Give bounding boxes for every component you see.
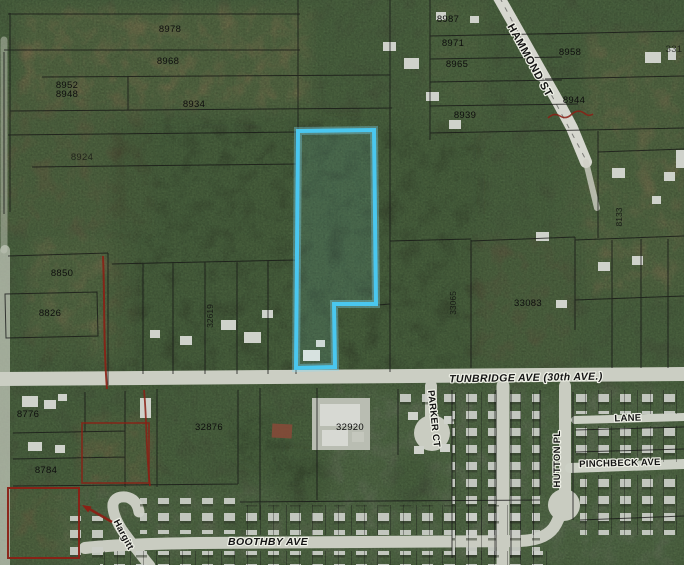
parcel-label-32619: 32619 [205,304,215,328]
parcel-label-8784: 8784 [35,465,57,476]
parcel-label-8987: 8987 [437,14,459,25]
street-label-boothby-ave: BOOTHBY AVE [228,536,309,548]
parcel-label-8948: 8948 [56,89,78,100]
parcel-label-331: 331 [666,44,683,55]
parcel-label-8965: 8965 [446,59,468,70]
parcel-label-8776: 8776 [17,409,39,420]
parcel-label-8944: 8944 [563,95,585,106]
parcel-label-33083: 33083 [514,298,542,309]
aerial-map-canvas[interactable]: 8978 8968 8952 8948 8934 8924 8850 8826 … [0,0,684,565]
parcel-label-8934: 8934 [183,99,205,110]
parcel-label-8850: 8850 [51,268,73,279]
parcel-label-8939: 8939 [454,110,476,121]
parcel-label-8971: 8971 [442,38,464,49]
street-label-pinchbeck-ave: PINCHBECK AVE [579,457,661,470]
parcel-label-8958: 8958 [559,47,581,58]
parcel-label-8924: 8924 [71,152,93,163]
aerial-imagery: 8978 8968 8952 8948 8934 8924 8850 8826 … [0,0,684,565]
parcel-label-32876: 32876 [195,422,223,433]
parcel-label-8133: 8133 [614,207,624,226]
parcel-label-33065: 33065 [448,291,458,315]
parcel-label-8978: 8978 [159,24,181,35]
street-label-lane: LANE [614,413,641,425]
street-label-hutton-pl: HUTTON PL [552,431,563,488]
parcel-label-32920: 32920 [336,422,364,433]
parcel-label-8826: 8826 [39,308,61,319]
parcel-label-8968: 8968 [157,56,179,67]
